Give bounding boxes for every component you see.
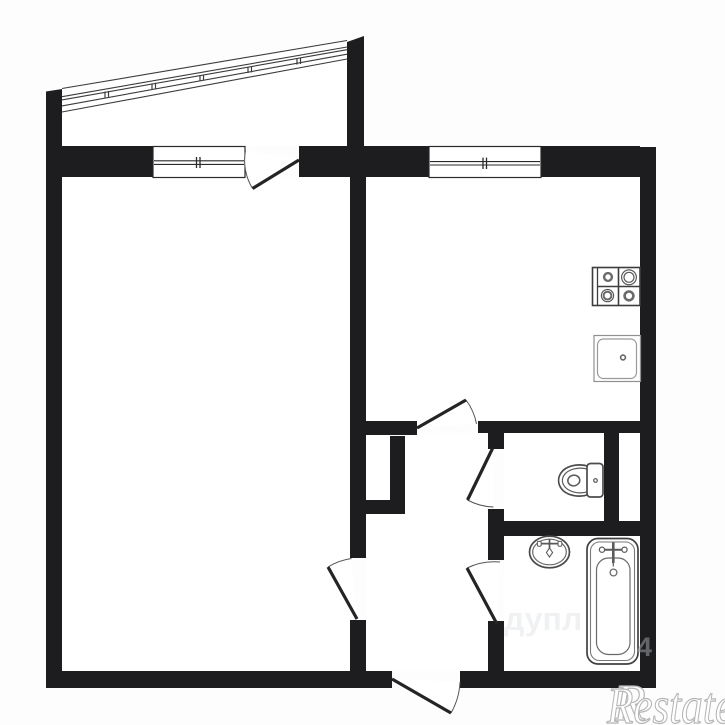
svg-text:Restate: Restate bbox=[606, 678, 725, 725]
svg-text:дупл: дупл bbox=[504, 601, 582, 637]
svg-text:4: 4 bbox=[637, 632, 652, 662]
